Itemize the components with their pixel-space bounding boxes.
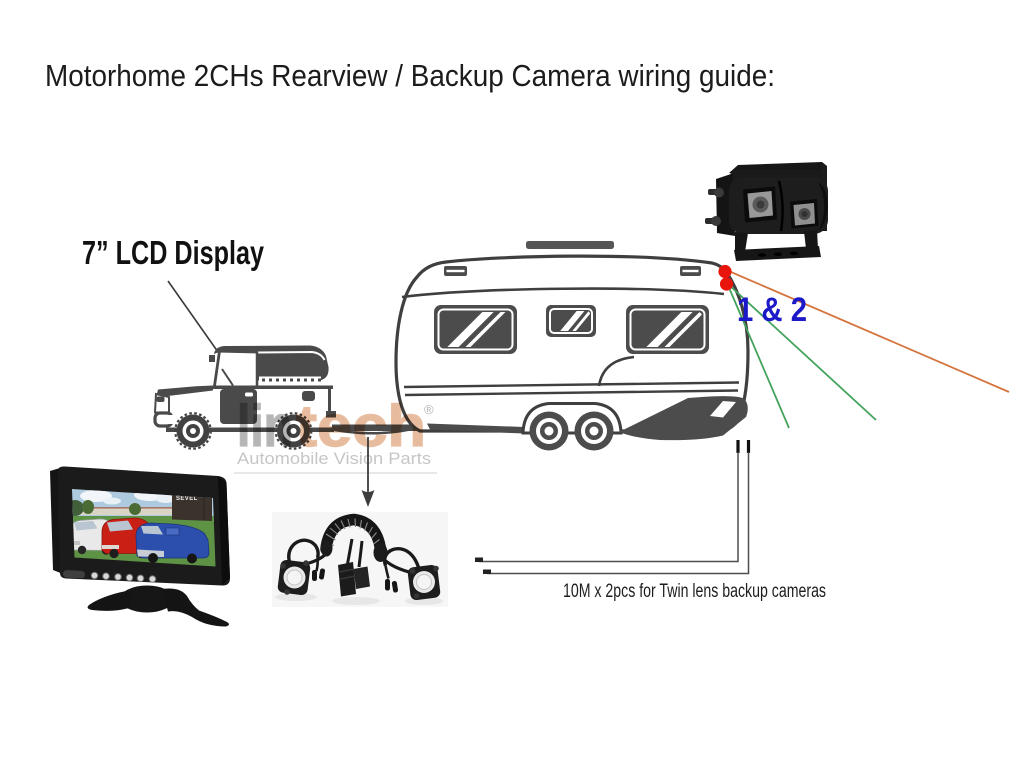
svg-text:Automobile Vision Parts: Automobile Vision Parts — [237, 450, 431, 468]
svg-text:7” LCD Display: 7” LCD Display — [82, 234, 264, 271]
svg-text:SEVEL: SEVEL — [176, 496, 198, 502]
svg-text:1 & 2: 1 & 2 — [737, 291, 807, 329]
svg-text:10M x 2pcs for Twin lens backu: 10M x 2pcs for Twin lens backup cameras — [563, 581, 826, 602]
svg-text:Motorhome 2CHs Rearview / Back: Motorhome 2CHs Rearview / Backup Camera … — [45, 58, 775, 93]
svg-text:®: ® — [424, 402, 434, 417]
